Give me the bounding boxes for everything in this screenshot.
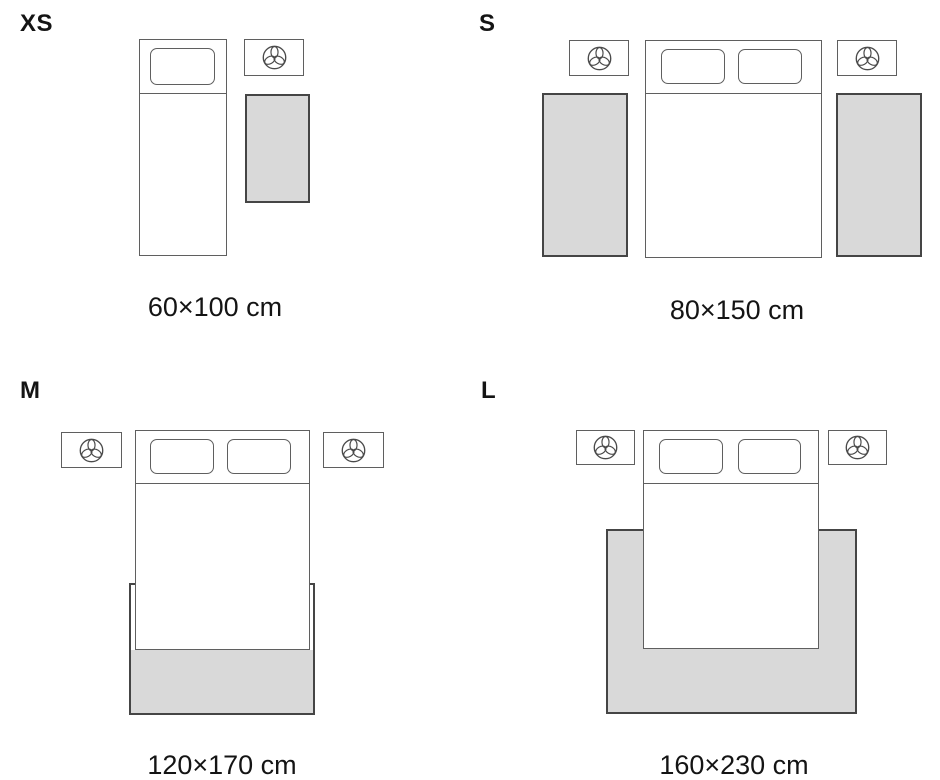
nightstand xyxy=(323,432,384,468)
size-dimensions-xs: 60×100 cm xyxy=(148,292,282,323)
rug-s-left xyxy=(542,93,628,257)
pillow xyxy=(150,48,215,85)
bed-headboard xyxy=(646,41,821,94)
pillow xyxy=(150,439,214,474)
nightstand xyxy=(61,432,122,468)
rug-xs xyxy=(245,94,310,203)
size-dimensions-m: 120×170 cm xyxy=(147,750,296,780)
plant-icon xyxy=(340,437,367,464)
bed-headboard xyxy=(140,40,226,94)
double-bed xyxy=(135,430,310,650)
bed-headboard xyxy=(136,431,309,484)
nightstand xyxy=(576,430,635,465)
nightstand xyxy=(244,39,304,76)
nightstand xyxy=(837,40,897,76)
pillow xyxy=(661,49,725,84)
plant-icon xyxy=(261,44,288,71)
plant-icon xyxy=(592,434,619,461)
pillow xyxy=(738,439,801,474)
plant-icon xyxy=(586,45,613,72)
single-bed xyxy=(139,39,227,256)
bed-headboard xyxy=(644,431,818,484)
double-bed xyxy=(643,430,819,649)
size-dimensions-l: 160×230 cm xyxy=(659,750,808,780)
plant-icon xyxy=(854,45,881,72)
pillow xyxy=(659,439,723,474)
nightstand xyxy=(828,430,887,465)
pillow xyxy=(738,49,802,84)
double-bed xyxy=(645,40,822,258)
nightstand xyxy=(569,40,629,76)
pillow xyxy=(227,439,291,474)
plant-icon xyxy=(844,434,871,461)
size-label-xs: XS xyxy=(20,10,53,38)
plant-icon xyxy=(78,437,105,464)
rug-size-guide: XS 60×100 cm S xyxy=(0,0,940,780)
rug-s-right xyxy=(836,93,922,257)
size-label-l: L xyxy=(481,377,496,405)
size-dimensions-s: 80×150 cm xyxy=(670,295,804,326)
size-label-s: S xyxy=(479,10,496,38)
size-label-m: M xyxy=(20,377,41,405)
